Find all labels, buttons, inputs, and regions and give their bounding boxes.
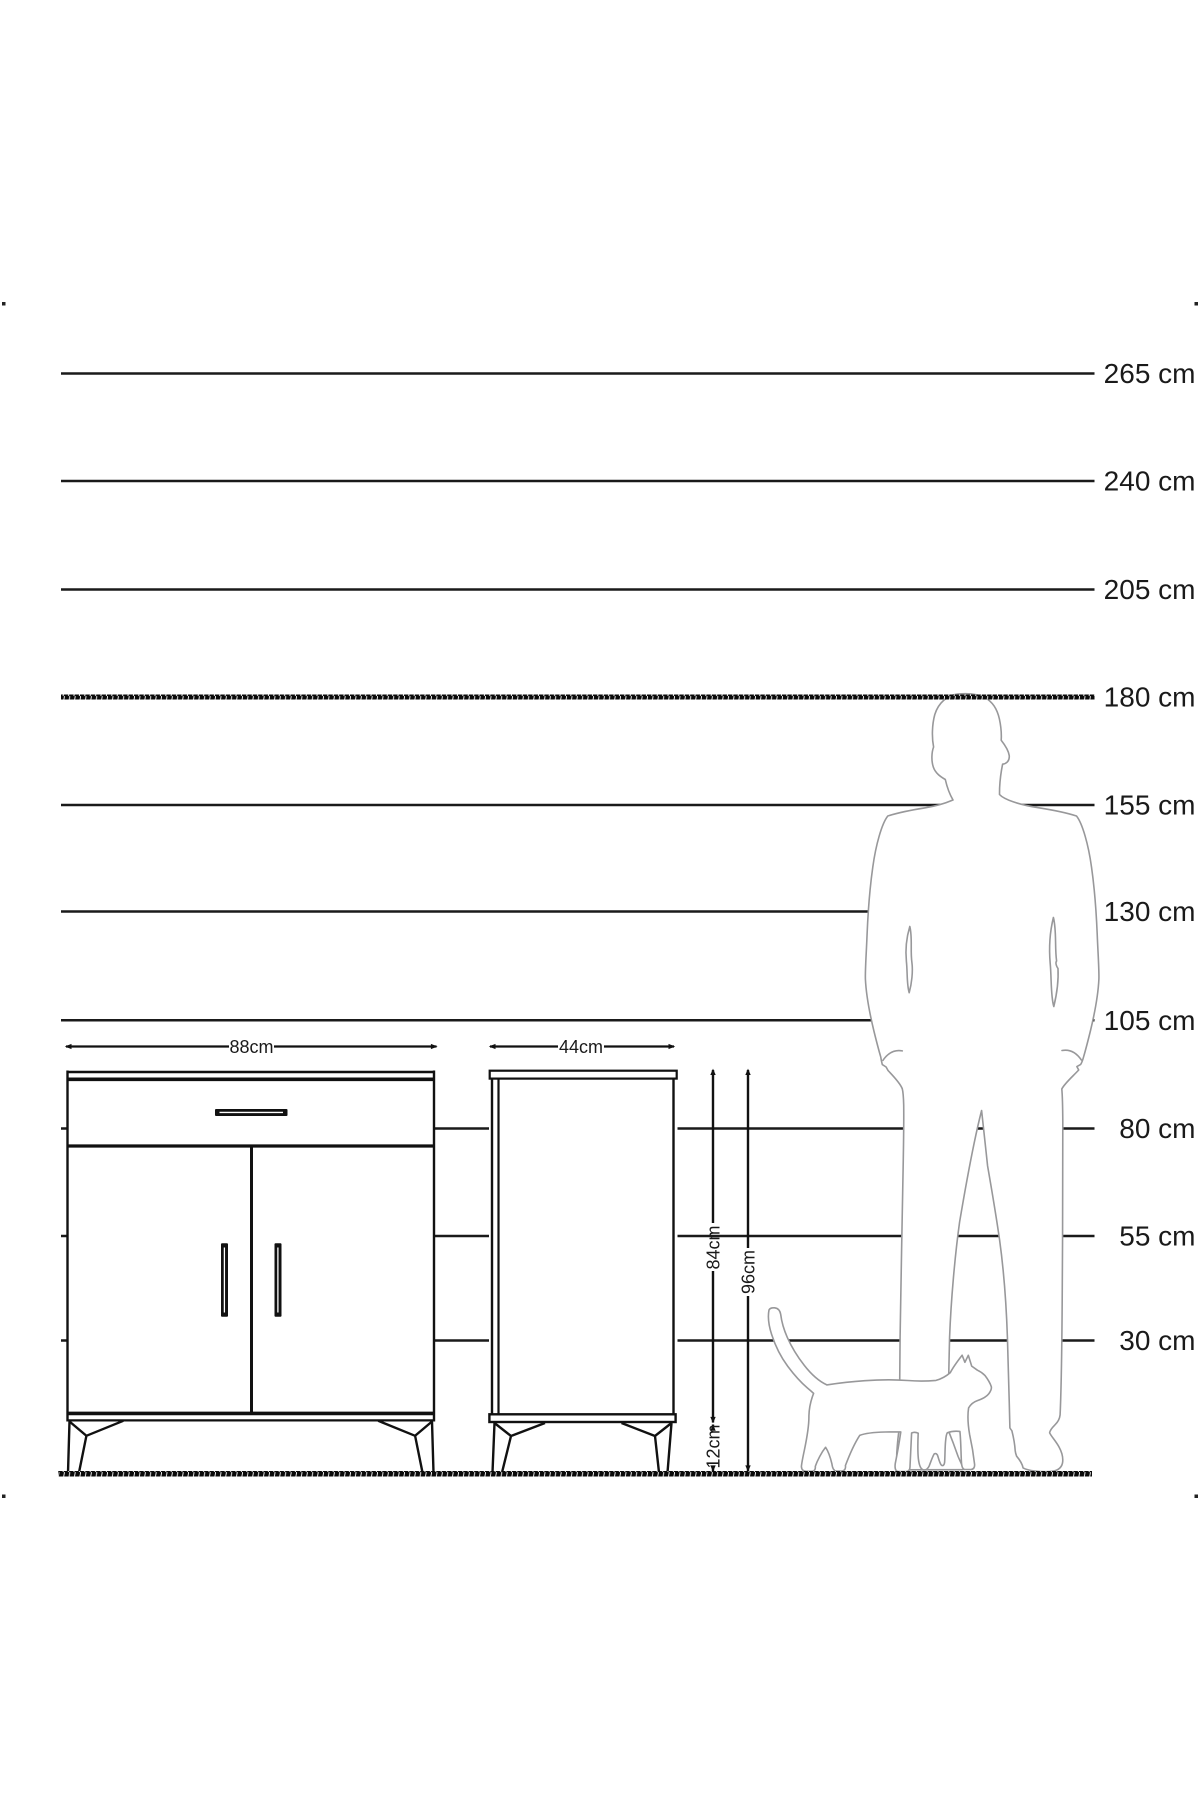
svg-text:180 cm: 180 cm	[1104, 682, 1196, 713]
svg-text:155 cm: 155 cm	[1104, 790, 1196, 821]
svg-text:240 cm: 240 cm	[1104, 466, 1196, 497]
svg-text:30 cm: 30 cm	[1119, 1325, 1195, 1356]
svg-text:55 cm: 55 cm	[1119, 1221, 1195, 1252]
svg-text:12cm: 12cm	[704, 1424, 724, 1468]
svg-text:205 cm: 205 cm	[1104, 574, 1196, 605]
svg-text:130 cm: 130 cm	[1104, 896, 1196, 927]
svg-text:96cm: 96cm	[739, 1250, 759, 1294]
svg-text:44cm: 44cm	[559, 1037, 603, 1057]
svg-text:88cm: 88cm	[229, 1037, 273, 1057]
svg-text:105 cm: 105 cm	[1104, 1005, 1196, 1036]
svg-text:80 cm: 80 cm	[1119, 1113, 1195, 1144]
svg-text:84cm: 84cm	[704, 1225, 724, 1269]
svg-text:265 cm: 265 cm	[1104, 358, 1196, 389]
